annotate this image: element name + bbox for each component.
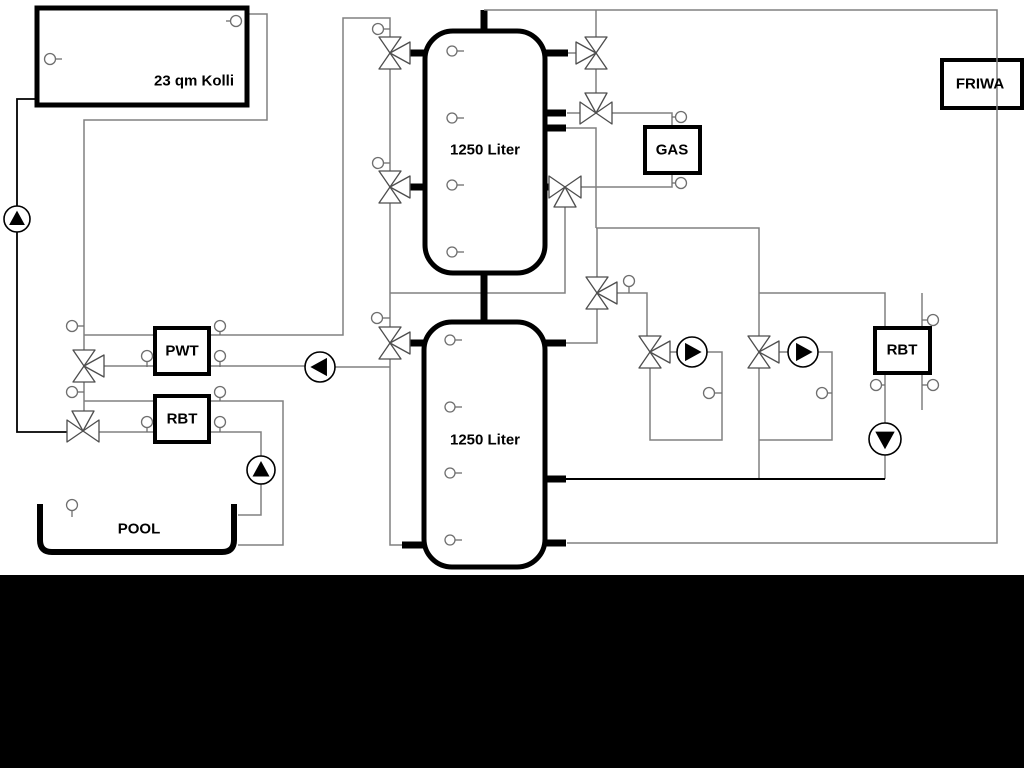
three-way-valve-icon (379, 37, 410, 69)
temperature-sensor-icon (67, 500, 78, 518)
gas-label: GAS (656, 143, 689, 158)
temperature-sensor-icon (67, 321, 85, 332)
temperature-sensor-icon (142, 417, 153, 433)
temperature-sensor-icon (373, 158, 391, 169)
three-way-valve-icon (576, 37, 607, 69)
schematic-stage: 23 qm Kolli 1250 Liter 1250 Liter PWT RB… (0, 0, 1024, 575)
friwa-label: FRIWA (956, 77, 1004, 92)
tank2-label: 1250 Liter (450, 433, 520, 448)
three-way-valve-icon (549, 176, 581, 207)
pipe-valved-to-tank2 (566, 309, 597, 343)
pipe-pool-pump-out (238, 483, 261, 515)
three-way-valve-icon (379, 171, 410, 203)
temperature-sensor-icon (704, 388, 723, 399)
pump-up-icon (4, 206, 30, 232)
pipe-collector-return-top (17, 99, 37, 207)
three-way-valve-icon (639, 336, 670, 368)
temperature-sensor-icon (624, 276, 635, 294)
pipe-rbt-to-pool-pump (209, 432, 261, 457)
tank1-label: 1250 Liter (450, 143, 520, 158)
temperature-sensor-icon (922, 315, 939, 326)
temperature-sensor-icon (373, 24, 391, 35)
rbt-right-label: RBT (887, 343, 918, 358)
three-way-valve-icon (748, 336, 779, 368)
temperature-sensor-icon (672, 178, 687, 189)
collector-label: 23 qm Kolli (154, 74, 234, 89)
pipe-header-to-rbt-right (759, 293, 885, 328)
pool-label: POOL (118, 522, 161, 537)
pwt-label: PWT (165, 344, 198, 359)
three-way-valve-icon (67, 411, 99, 442)
temperature-sensor-icon (215, 321, 226, 336)
three-way-valve-icon (586, 277, 617, 309)
temperature-sensor-icon (372, 313, 391, 324)
temperature-sensor-icon (817, 388, 833, 399)
pipe-right-circuit-header (596, 228, 759, 293)
pipe-collector-return-bottom (17, 231, 68, 432)
collector-box (37, 8, 247, 105)
pump-up-icon (247, 456, 275, 484)
three-way-valve-icon (580, 93, 612, 124)
temperature-sensor-icon (672, 112, 687, 123)
temperature-sensor-icon (142, 351, 153, 368)
pump-left-icon (305, 352, 335, 382)
pipe-to-gas-top (612, 113, 672, 127)
bottom-black-band (0, 575, 1024, 768)
rbt-left-label: RBT (167, 412, 198, 427)
pump-right-icon (677, 337, 707, 367)
temperature-sensor-icon (922, 380, 939, 391)
temperature-sensor-icon (215, 351, 226, 368)
pipe-gas-bottom (581, 173, 672, 187)
pipe-top-header-friwa (484, 10, 997, 543)
temperature-sensor-icon (215, 387, 226, 402)
component-boxes (37, 8, 1022, 567)
pump-right-icon (788, 337, 818, 367)
pump-down-icon (869, 423, 901, 455)
pipe-valvej-to-tank2-bottom (390, 359, 403, 545)
three-way-valve-icon (379, 327, 410, 359)
temperature-sensor-icon (67, 387, 85, 398)
temperature-sensor-icon (871, 380, 886, 391)
temperature-sensor-icon (215, 417, 226, 433)
three-way-valve-icon (73, 350, 104, 382)
